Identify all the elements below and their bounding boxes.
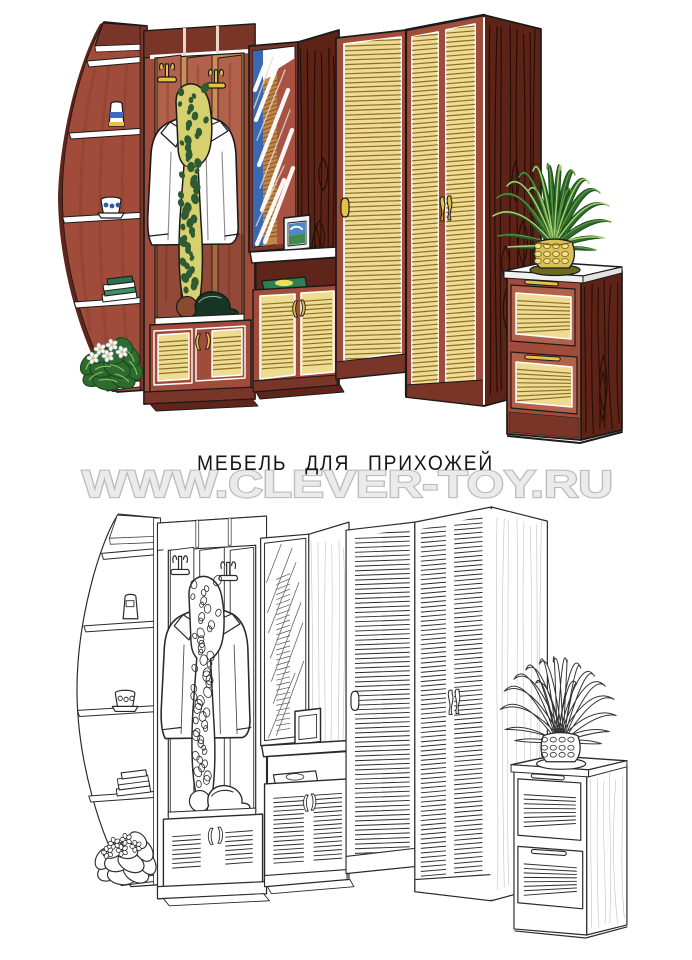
svg-text:МЕБЕЛЬ ДЛЯ ПРИХОЖЕЙ: МЕБЕЛЬ ДЛЯ ПРИХОЖЕЙ (197, 450, 494, 475)
